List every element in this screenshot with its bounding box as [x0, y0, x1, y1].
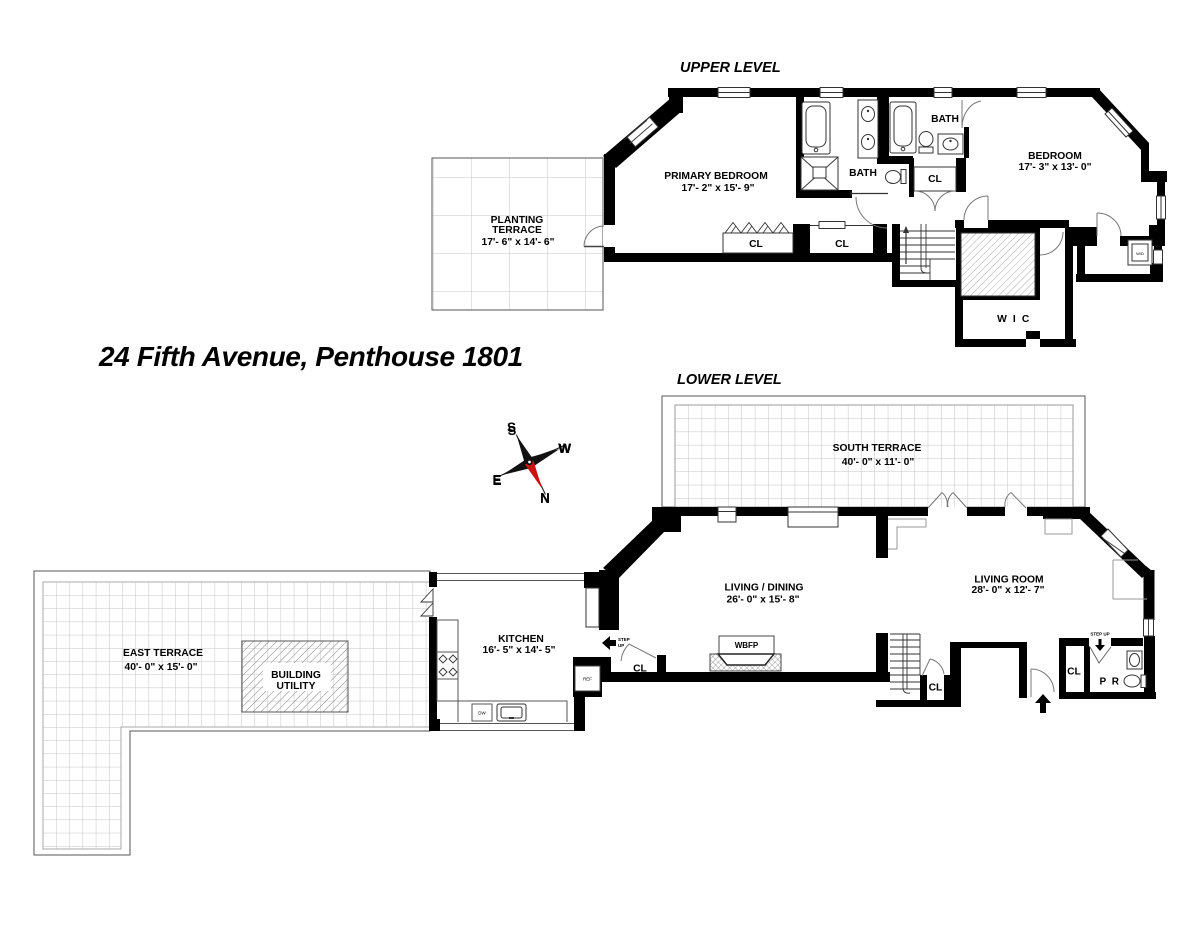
svg-text:TERRACE: TERRACE [492, 225, 542, 236]
svg-text:KITCHEN: KITCHEN [498, 634, 544, 645]
svg-text:40'- 0" x 11'- 0": 40'- 0" x 11'- 0" [842, 457, 915, 468]
svg-text:PRIMARY BEDROOM: PRIMARY BEDROOM [664, 171, 768, 182]
svg-text:REF: REF [583, 677, 592, 682]
svg-text:16'- 5" x 14'- 5": 16'- 5" x 14'- 5" [482, 645, 555, 656]
svg-text:BEDROOM: BEDROOM [1028, 151, 1082, 162]
svg-text:24 Fifth Avenue, Penthouse 180: 24 Fifth Avenue, Penthouse 1801 [98, 341, 523, 372]
svg-text:P R: P R [1100, 677, 1121, 688]
svg-text:WBFP: WBFP [735, 641, 759, 650]
svg-text:LIVING / DINING: LIVING / DINING [725, 583, 804, 594]
svg-text:17'- 6" x 14'- 6": 17'- 6" x 14'- 6" [481, 237, 554, 248]
svg-text:BATH: BATH [931, 114, 959, 125]
svg-text:UPPER LEVEL: UPPER LEVEL [680, 60, 781, 76]
svg-text:W/D: W/D [1136, 251, 1144, 256]
svg-text:CL: CL [929, 683, 943, 694]
svg-text:S: S [508, 423, 517, 438]
svg-text:E: E [493, 472, 502, 487]
svg-text:BUILDING: BUILDING [271, 670, 321, 681]
svg-text:26'- 0" x 15'- 8": 26'- 0" x 15'- 8" [726, 595, 799, 606]
svg-text:SOUTH TERRACE: SOUTH TERRACE [833, 443, 922, 454]
svg-text:CL: CL [928, 174, 942, 185]
svg-text:N: N [540, 490, 549, 505]
svg-text:STEP: STEP [618, 637, 630, 642]
svg-text:EAST TERRACE: EAST TERRACE [123, 648, 203, 659]
svg-text:LOWER LEVEL: LOWER LEVEL [677, 372, 782, 388]
svg-text:17'- 3" x 13'- 0": 17'- 3" x 13'- 0" [1018, 162, 1091, 173]
svg-text:40'- 0" x 15'- 0": 40'- 0" x 15'- 0" [124, 662, 197, 673]
svg-text:CL: CL [633, 664, 647, 675]
svg-text:DW: DW [478, 711, 486, 716]
svg-text:CL: CL [1067, 667, 1081, 678]
svg-text:W I C: W I C [997, 314, 1031, 325]
svg-text:BATH: BATH [849, 168, 877, 179]
svg-text:CL: CL [749, 239, 763, 250]
svg-text:UP: UP [618, 643, 624, 648]
svg-text:UTILITY: UTILITY [277, 681, 316, 692]
svg-text:W: W [559, 441, 572, 456]
svg-text:28'- 0" x 12'- 7": 28'- 0" x 12'- 7" [971, 585, 1044, 596]
svg-text:LIVING ROOM: LIVING ROOM [974, 575, 1043, 586]
svg-text:STEP UP: STEP UP [1090, 632, 1109, 637]
svg-text:CL: CL [835, 239, 849, 250]
svg-text:17'- 2" x 15'- 9": 17'- 2" x 15'- 9" [681, 183, 754, 194]
